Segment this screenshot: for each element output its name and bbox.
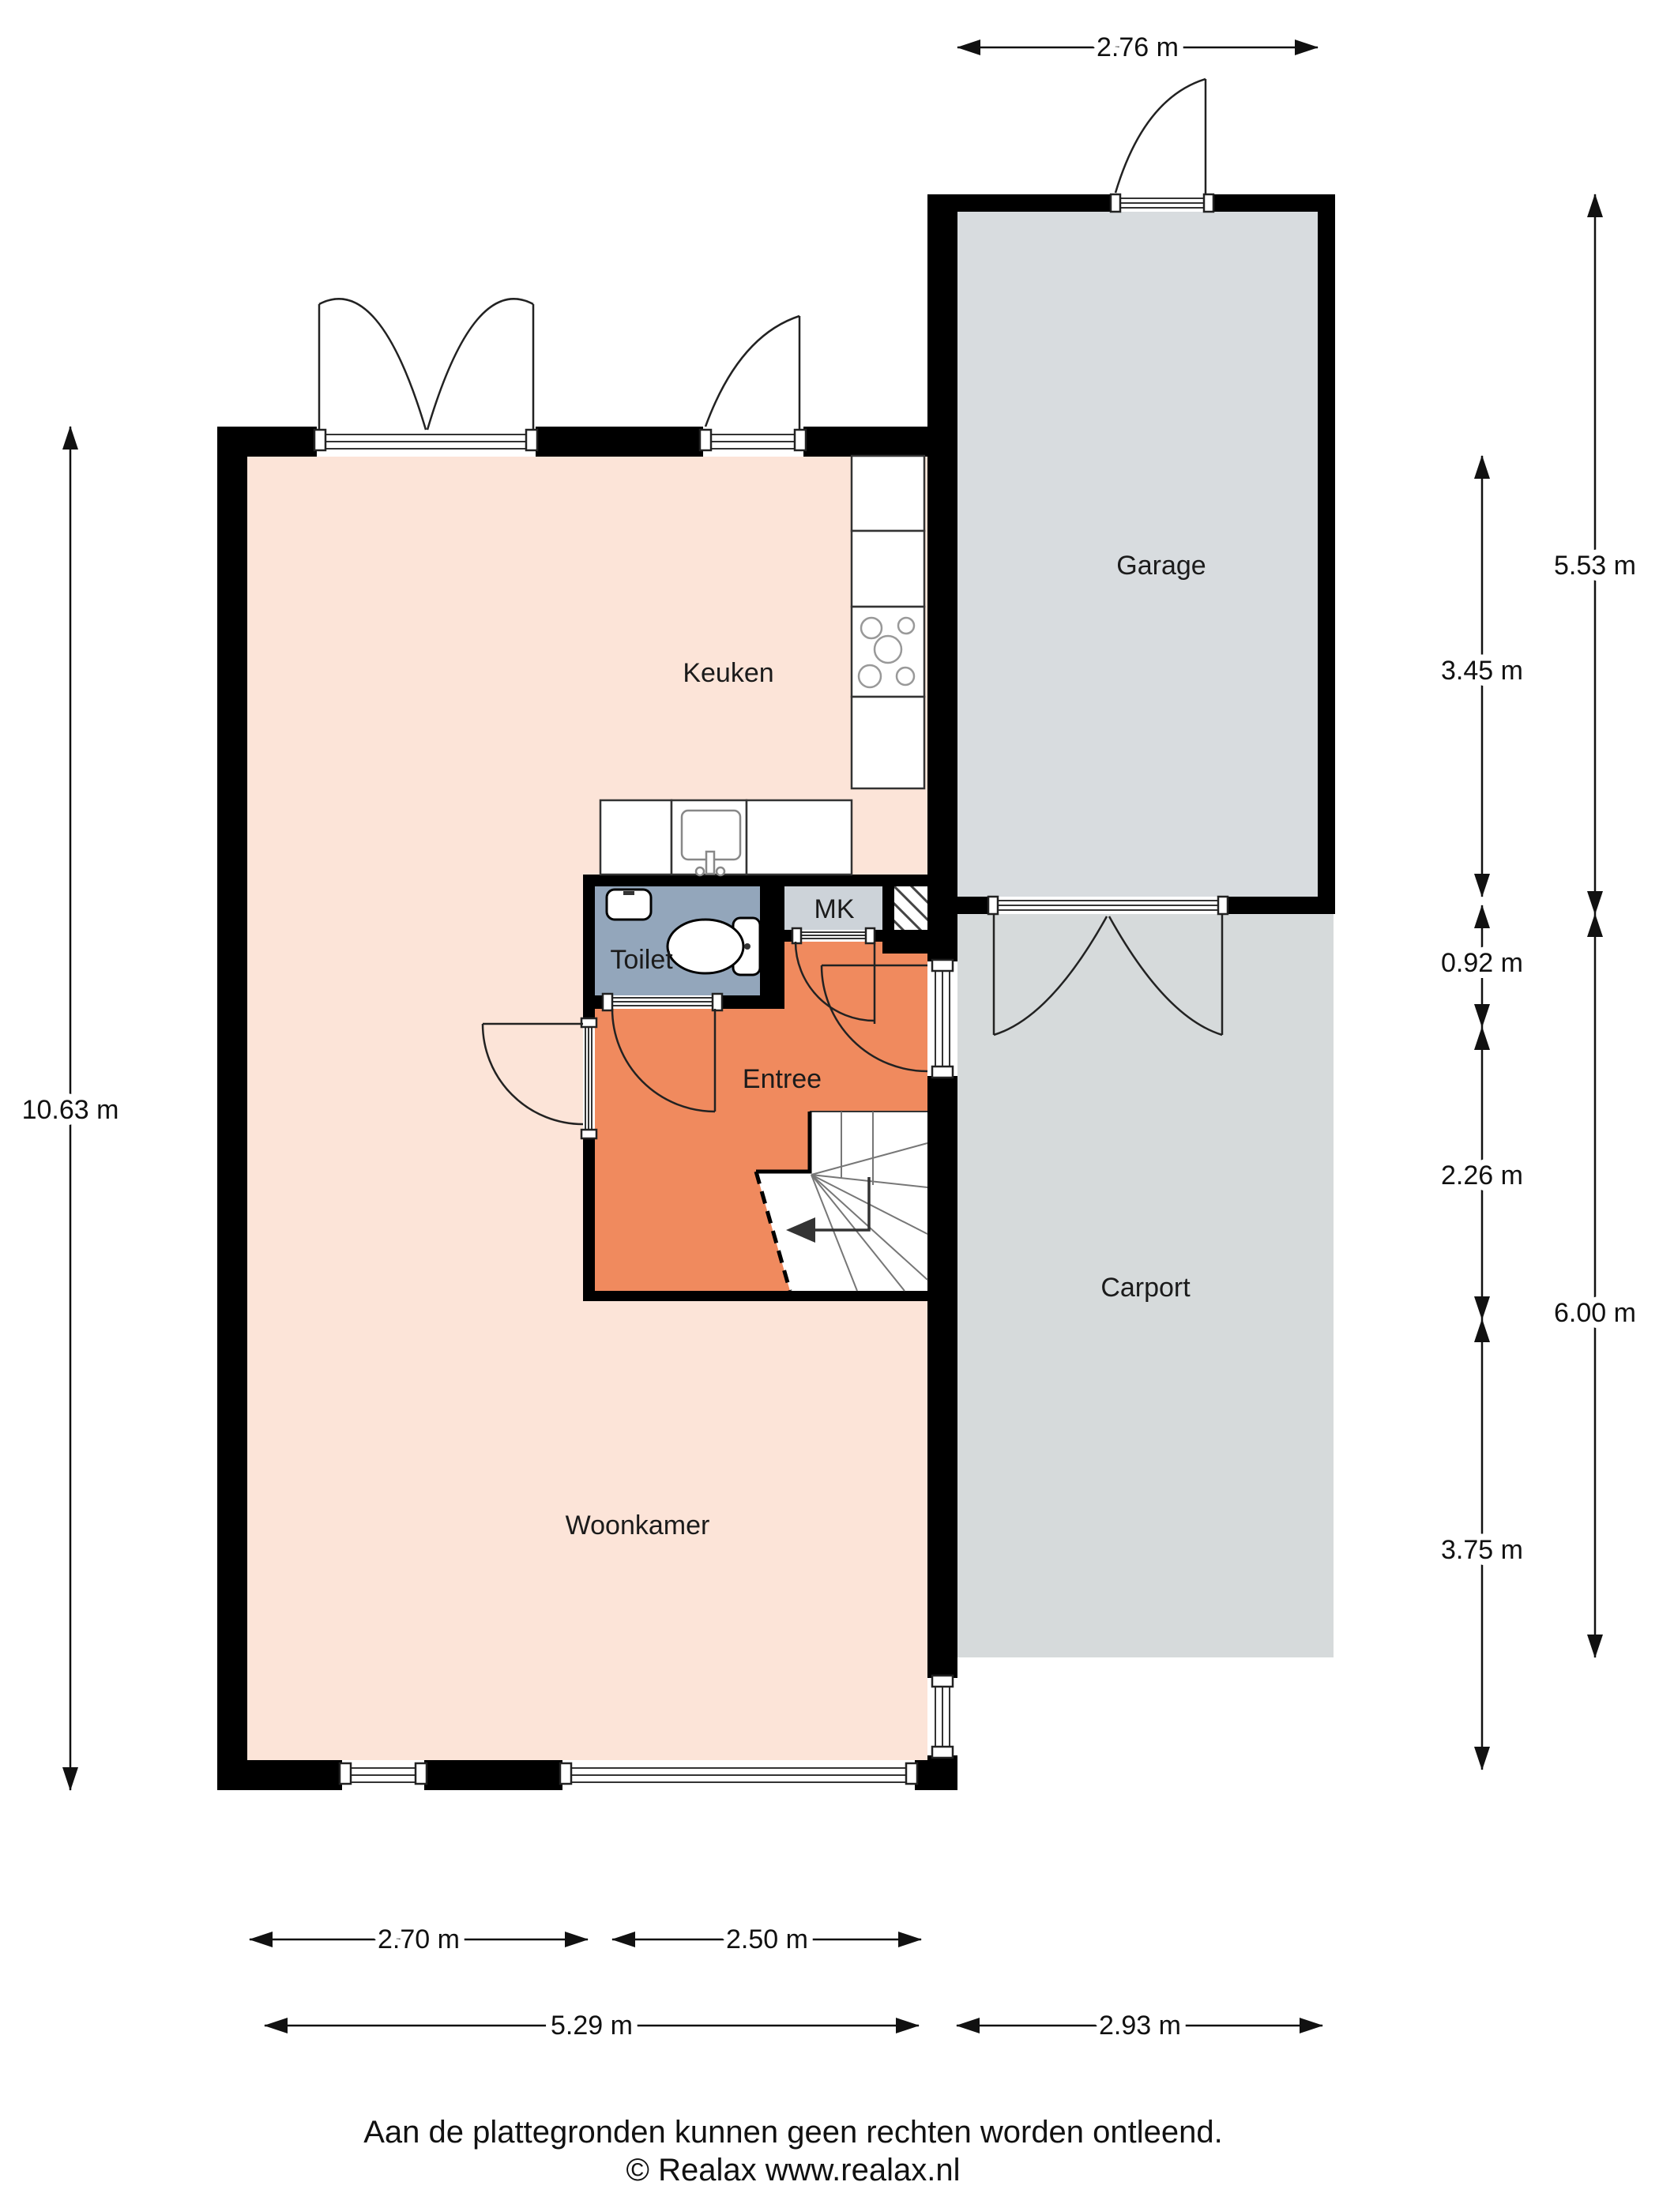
garage-side-door bbox=[1111, 79, 1213, 212]
window-bottom-right bbox=[560, 1760, 917, 1790]
svg-text:3.75 m: 3.75 m bbox=[1441, 1535, 1523, 1565]
svg-text:10.63 m: 10.63 m bbox=[22, 1095, 119, 1125]
kitchen-back-door bbox=[700, 316, 806, 457]
basin-tap-icon bbox=[623, 891, 634, 895]
dimension-bottom-window-left: 2.70 m bbox=[250, 1924, 588, 1954]
svg-text:2.70 m: 2.70 m bbox=[378, 1924, 460, 1954]
dimension-right-inner-1: 3.45 m bbox=[1441, 456, 1523, 897]
svg-text:2.76 m: 2.76 m bbox=[1097, 32, 1179, 62]
svg-text:2.93 m: 2.93 m bbox=[1099, 2011, 1181, 2041]
svg-text:2.26 m: 2.26 m bbox=[1441, 1161, 1523, 1191]
copyright-text: © Realax www.realax.nl bbox=[626, 2153, 961, 2188]
dimension-right-inner-3: 2.26 m bbox=[1441, 1027, 1523, 1319]
room-label-garage: Garage bbox=[1116, 551, 1206, 581]
disclaimer-text: Aan de plattegronden kunnen geen rechten… bbox=[363, 2115, 1223, 2150]
svg-text:3.45 m: 3.45 m bbox=[1441, 656, 1523, 686]
dimension-bottom-carport-width: 2.93 m bbox=[957, 2011, 1322, 2041]
toilet-bowl-icon bbox=[668, 918, 760, 975]
dimension-right-inner-2: 0.92 m bbox=[1441, 905, 1523, 1027]
svg-text:5.29 m: 5.29 m bbox=[551, 2011, 633, 2041]
svg-text:5.53 m: 5.53 m bbox=[1554, 551, 1636, 581]
dimension-left-house-height: 10.63 m bbox=[22, 427, 119, 1790]
room-label-keuken: Keuken bbox=[683, 658, 773, 688]
door-swing-icon bbox=[1115, 79, 1206, 194]
dimension-right-garage-height: 5.53 m bbox=[1554, 194, 1636, 914]
room-label-woonkamer: Woonkamer bbox=[566, 1510, 710, 1540]
door-swing-icon bbox=[705, 316, 799, 430]
dimension-right-carport-height: 6.00 m bbox=[1554, 914, 1636, 1657]
dimension-bottom-window-right: 2.50 m bbox=[612, 1924, 921, 1954]
double-door-swing-icon bbox=[319, 299, 533, 430]
room-label-mk: MK bbox=[814, 894, 855, 924]
room-label-toilet: Toilet bbox=[610, 945, 673, 975]
window-right bbox=[927, 1676, 957, 1758]
dimension-right-inner-4: 3.75 m bbox=[1441, 1319, 1523, 1770]
room-label-entree: Entree bbox=[743, 1064, 822, 1094]
floorplan-page: Keuken Garage Toilet MK Entree Woonkamer… bbox=[0, 0, 1659, 2212]
svg-text:6.00 m: 6.00 m bbox=[1554, 1298, 1636, 1328]
svg-text:0.92 m: 0.92 m bbox=[1441, 948, 1523, 978]
svg-text:2.50 m: 2.50 m bbox=[726, 1924, 808, 1954]
floorplan-canvas: Keuken Garage Toilet MK Entree Woonkamer… bbox=[0, 0, 1659, 2212]
dimension-top-garage-width: 2.76 m bbox=[957, 32, 1318, 62]
window-bottom-left bbox=[340, 1760, 427, 1790]
double-garden-door bbox=[314, 299, 537, 457]
dimension-bottom-house-width: 5.29 m bbox=[265, 2011, 919, 2041]
room-label-carport: Carport bbox=[1100, 1273, 1191, 1303]
